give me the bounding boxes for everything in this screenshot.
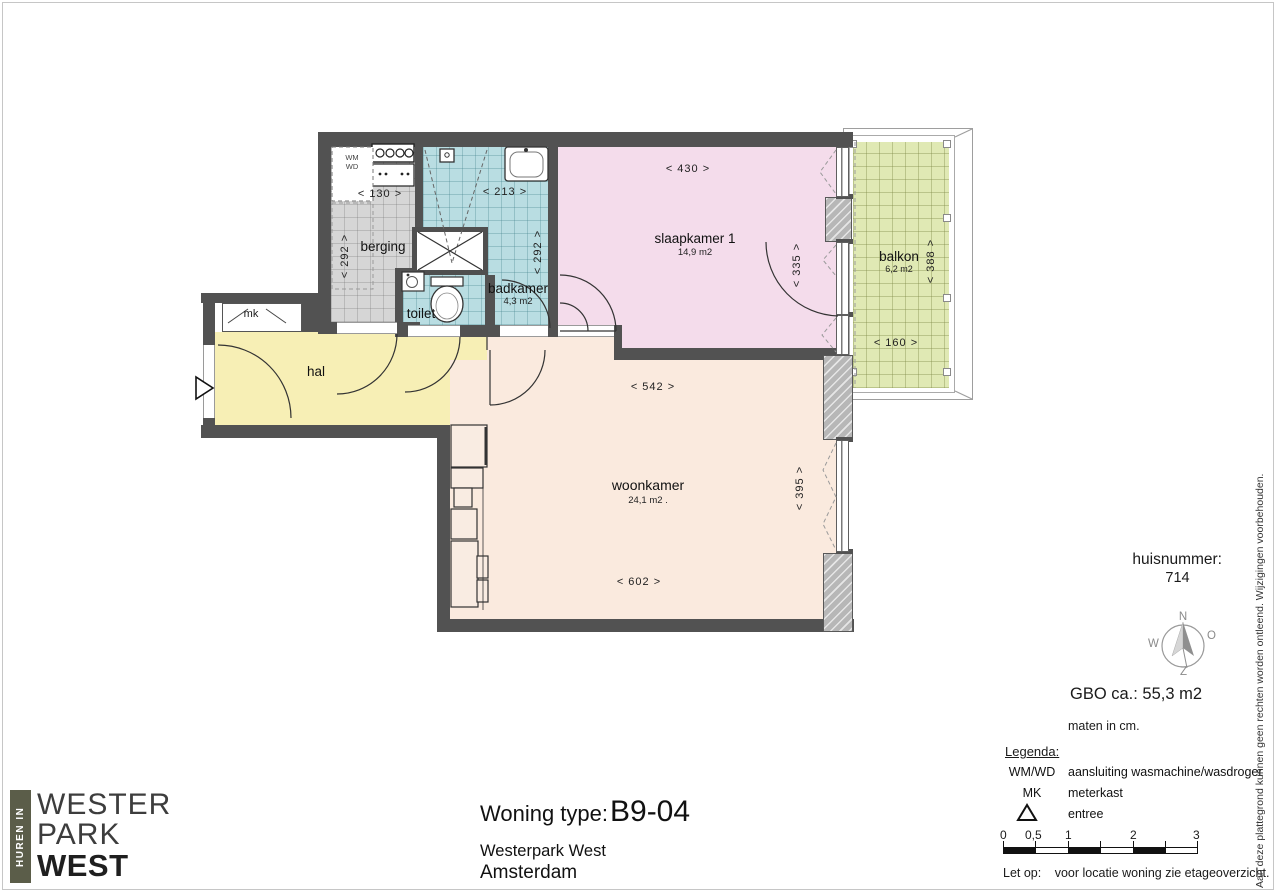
scale-segment [1165,847,1198,854]
dim-label: < 130 > [352,188,408,200]
legend-desc-wmwd: aansluiting wasmachine/wasdroger [1068,765,1263,779]
huisnummer-value: 714 [1115,570,1240,586]
wall [460,325,500,337]
maten-label: maten in cm. [1068,719,1140,733]
scale-segment [1068,847,1101,854]
badkamer-door-gap [500,325,548,337]
dim-label: < 335 > [791,237,803,293]
floorplan-page: berging badkamer 4,3 m2 toilet hal slaap… [0,0,1280,895]
scale-label: 0 [1000,828,1007,842]
shaft [412,227,488,275]
wall [618,348,840,360]
logo-line2: PARK [37,820,120,850]
legend-title: Legenda: [1005,744,1059,759]
wall [302,303,318,332]
entrance-door [203,345,215,418]
project-name: Westerpark West [480,842,606,861]
wall [203,303,215,345]
note-text: voor locatie woning zie etageoverzicht. [1055,866,1270,880]
berging-door-gap [337,322,397,334]
dim-label: < 542 > [625,381,681,393]
room-label-berging: berging [343,239,423,254]
window [836,315,849,355]
wall [548,147,558,337]
room-label-toilet: toilet [391,306,451,321]
scale-segment [1100,847,1134,854]
wall [437,619,854,632]
room-slaapkamer-south [617,325,836,348]
huisnummer-label: huisnummer: [1082,551,1222,569]
balcony-post [943,368,951,376]
logo-line1: WESTER [37,790,171,820]
dim-label: < 395 > [794,460,806,516]
entree-triangle-icon [1018,805,1036,820]
wall [318,322,337,334]
compass-icon [1162,622,1204,668]
dim-label: < 388 > [925,233,937,289]
legend-key-mk: MK [1003,786,1061,800]
compass-o-label: O [1207,630,1216,642]
dim-label: < 292 > [339,228,351,284]
wall [201,425,450,438]
scale-label: 2 [1130,828,1137,842]
legend-desc-entree: entree [1068,807,1103,821]
note-label: Let op: [1003,866,1041,880]
room-area-balkon: 6,2 m2 [869,264,929,274]
wall [437,425,450,632]
balcony-door [836,242,849,315]
dim-label: < 213 > [477,186,533,198]
wall-pier [823,553,853,632]
room-label-hal: hal [286,364,346,379]
room-woonkamer-corridor [487,337,614,363]
note-line: Let op: voor locatie woning zie etageove… [1003,866,1269,880]
slaapkamer-door-gap [558,325,614,337]
dim-label: < 430 > [660,163,716,175]
legend-desc-mk: meterkast [1068,786,1123,800]
wm-wd-label: WM WD [338,153,366,171]
wall [415,147,423,228]
legend-key-wmwd: WM/WD [1003,765,1061,779]
wall-pier [823,355,853,440]
scale-bar: 0 0,5 1 2 3 [1003,828,1199,858]
room-label-slaapkamer: slaapkamer 1 [645,231,745,246]
room-area-slaapkamer: 14,9 m2 [645,247,745,258]
wall [318,147,331,334]
scale-label: 0,5 [1025,828,1042,842]
wall [201,293,318,303]
balcony-post [943,214,951,222]
window-folding [836,440,849,552]
toilet-door-gap [408,325,460,337]
logo-vertical-bar: HUREN IN [10,790,31,883]
wall-pier [825,197,852,242]
wd-label: WD [346,162,359,171]
gbo-label: GBO ca.: 55,3 m2 [1070,685,1202,704]
scale-segment [1133,847,1166,854]
dim-label: < 160 > [868,337,924,349]
balcony-post [943,140,951,148]
compass-z-label: Z [1180,666,1187,678]
woning-type-value: B9-04 [610,795,690,829]
room-label-mk: mk [231,308,271,320]
logo-line3: WEST [37,850,129,881]
scale-segment [1003,847,1036,854]
scale-label: 3 [1193,828,1200,842]
dim-label: < 602 > [611,576,667,588]
scale-segment [1035,847,1069,854]
wall [318,132,853,147]
balcony-post [943,294,951,302]
room-label-badkamer: badkamer [478,281,558,296]
room-hal [215,332,487,425]
compass-n-label: N [1177,611,1189,623]
disclaimer-text: Aan deze plattegrond kunnen geen rechten… [1254,288,1270,888]
city-name: Amsterdam [480,862,577,884]
scale-label: 1 [1065,828,1072,842]
wm-label: WM [345,153,358,162]
window [836,147,849,197]
compass-w-label: W [1148,638,1159,650]
woning-type-label: Woning type: [480,801,608,827]
dim-label: < 292 > [532,224,544,280]
room-area-badkamer: 4,3 m2 [478,296,558,307]
logo: HUREN IN WESTER PARK WEST [10,790,210,885]
room-area-woonkamer: 24,1 m2 . [598,495,698,506]
room-label-woonkamer: woonkamer [598,477,698,493]
room-label-balkon: balkon [869,249,929,264]
